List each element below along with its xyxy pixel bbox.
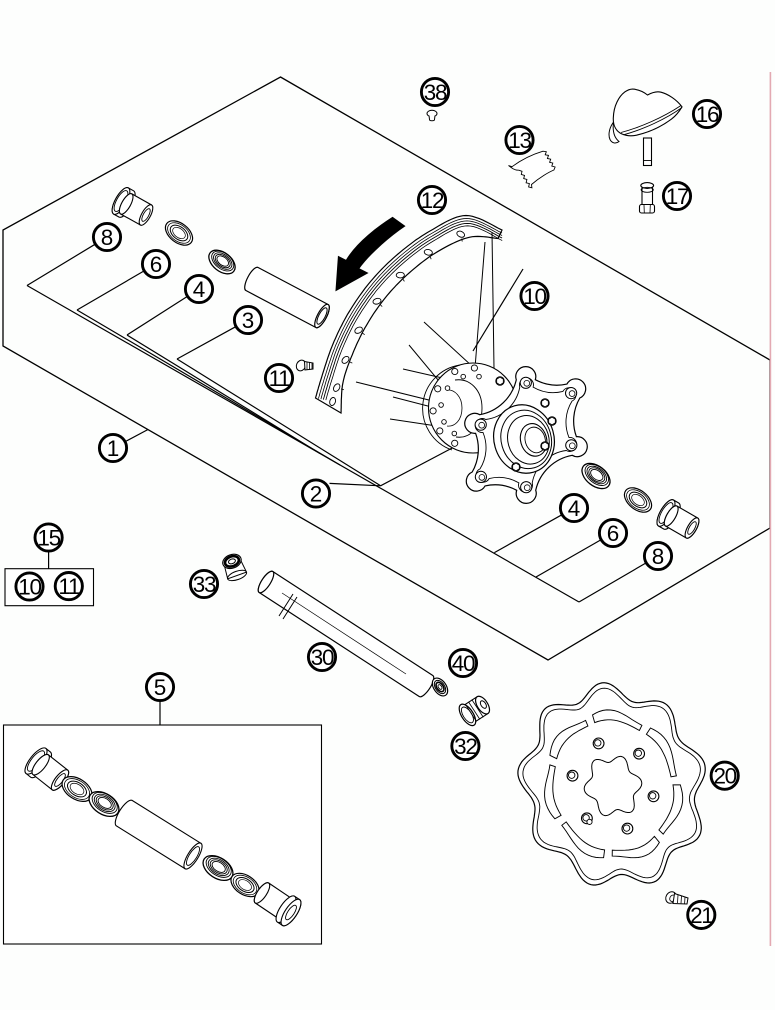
svg-text:13: 13 bbox=[508, 128, 531, 153]
svg-text:3: 3 bbox=[242, 308, 255, 333]
svg-text:8: 8 bbox=[652, 544, 665, 569]
svg-text:21: 21 bbox=[690, 903, 713, 928]
svg-text:15: 15 bbox=[37, 526, 60, 551]
svg-text:12: 12 bbox=[421, 188, 444, 213]
svg-text:10: 10 bbox=[523, 284, 546, 309]
svg-text:40: 40 bbox=[452, 651, 475, 676]
svg-text:17: 17 bbox=[666, 184, 689, 209]
svg-text:16: 16 bbox=[696, 102, 719, 127]
svg-text:1: 1 bbox=[107, 436, 120, 461]
svg-text:6: 6 bbox=[607, 521, 620, 546]
svg-text:10: 10 bbox=[18, 575, 41, 600]
svg-text:11: 11 bbox=[58, 574, 80, 599]
svg-text:11: 11 bbox=[269, 366, 291, 391]
svg-text:4: 4 bbox=[568, 496, 581, 521]
svg-text:38: 38 bbox=[424, 80, 447, 105]
svg-text:32: 32 bbox=[454, 734, 477, 759]
svg-text:4: 4 bbox=[193, 277, 206, 302]
svg-text:8: 8 bbox=[101, 225, 114, 250]
svg-text:2: 2 bbox=[310, 482, 323, 507]
svg-text:30: 30 bbox=[311, 645, 334, 670]
svg-text:20: 20 bbox=[713, 764, 736, 789]
svg-text:5: 5 bbox=[154, 675, 167, 700]
svg-text:6: 6 bbox=[150, 252, 163, 277]
svg-text:33: 33 bbox=[193, 572, 216, 597]
